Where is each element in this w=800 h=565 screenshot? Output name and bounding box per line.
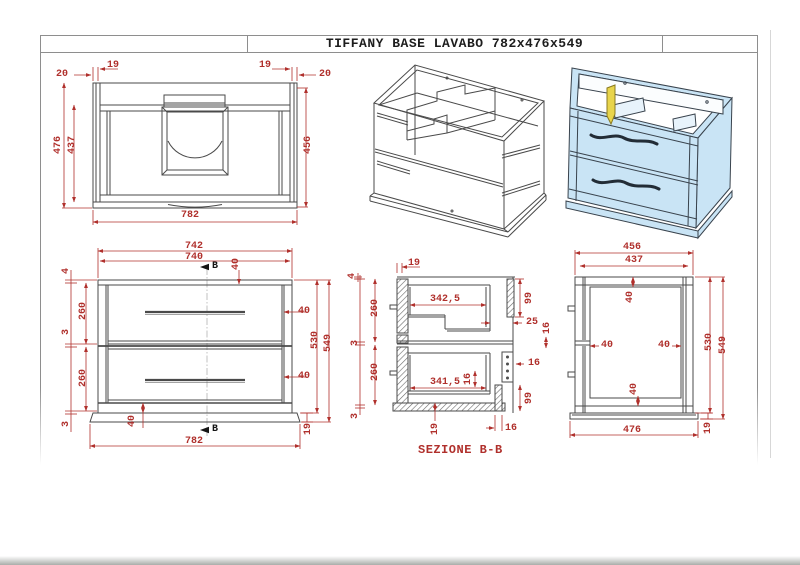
dim-label: 40 [630, 383, 640, 395]
scan-bottom-band [0, 556, 800, 565]
dim-label: 19 [431, 423, 441, 435]
drawer-handle-side [568, 306, 575, 311]
dim-label: 4 [62, 268, 72, 274]
back-panel-section [495, 385, 502, 411]
section-marker: B [212, 262, 218, 272]
dim-label: 20 [56, 70, 68, 80]
dim-label: 782 [185, 437, 203, 447]
dim-label: 456 [304, 136, 314, 154]
drawer-handle-side [568, 372, 575, 377]
dim-label: 40 [298, 372, 310, 382]
dim-label: 19 [704, 422, 714, 434]
dim-label: 19 [107, 61, 119, 71]
scan-edge-line [770, 30, 771, 458]
wireframe-linework [362, 53, 562, 245]
sink-cutout [162, 107, 228, 175]
section-arrow-top [200, 264, 209, 270]
dim-label: 342,5 [430, 295, 460, 305]
mounting-bracket [607, 85, 615, 124]
dim-label: 19 [259, 61, 271, 71]
frame-left [40, 35, 41, 465]
dim-label: 530 [311, 331, 321, 349]
front-view: 742 740 40 B B 4 260 3 260 3 40 40 530 5… [55, 240, 355, 465]
dim-label: 549 [324, 334, 334, 352]
drawer-front-section [397, 279, 408, 333]
dim-label: 3 [62, 421, 72, 427]
dim-label: 4 [348, 273, 358, 279]
rendered-3d-view [555, 55, 760, 240]
dim-label: 260 [371, 363, 381, 381]
dim-label: 3 [351, 340, 361, 346]
handle-profile [168, 205, 222, 208]
dim-label: 19 [408, 259, 420, 269]
titlebar-divider-right [662, 35, 663, 52]
plinth [570, 413, 698, 419]
plinth [90, 413, 300, 422]
dim-label: 16 [464, 373, 474, 385]
dim-label: 260 [79, 302, 89, 320]
dim-label: 16 [505, 424, 517, 434]
side-view: 456 437 40 40 40 530 549 40 476 19 [555, 240, 770, 460]
dim-label: 530 [705, 333, 715, 351]
dim-label: 16 [528, 359, 540, 369]
dim-label: 40 [601, 341, 613, 351]
dim-label: 20 [319, 70, 331, 80]
dim-label: 740 [185, 253, 203, 263]
dim-label: 19 [304, 423, 314, 435]
dim-label: 742 [185, 242, 203, 252]
cabinet-bottom-section [393, 403, 505, 411]
dim-label: 456 [623, 243, 641, 253]
wireframe-3d-view [362, 53, 562, 245]
rendered-linework [555, 55, 760, 240]
dim-label: 3 [62, 329, 72, 335]
dim-label: 40 [298, 307, 310, 317]
dim-label: 549 [719, 336, 729, 354]
dim-label: 25 [526, 318, 538, 328]
section-caption: SEZIONE B-B [418, 444, 503, 456]
dim-label: 437 [625, 256, 643, 266]
dim-label: 16 [543, 322, 553, 334]
dim-label: 476 [54, 136, 64, 154]
dim-label: 40 [658, 341, 670, 351]
dim-label: 476 [623, 426, 641, 436]
dim-label: 40 [626, 291, 636, 303]
dim-label: 782 [181, 211, 199, 221]
dim-label: 99 [525, 292, 535, 304]
dim-label: 341,5 [430, 378, 460, 388]
top-view: 20 19 19 20 476 437 456 782 [50, 55, 335, 240]
dim-label: 40 [232, 258, 242, 270]
drawing-title: TIFFANY BASE LAVABO 782x476x549 [247, 36, 662, 51]
section-view-linework [350, 245, 560, 460]
section-view: 4 19 260 3 260 3 342,5 99 25 16 16 16 34… [350, 245, 560, 460]
section-marker: B [212, 425, 218, 435]
drawer-front-section [397, 347, 408, 403]
back-rail-section [507, 279, 514, 317]
dim-label: 437 [68, 136, 78, 154]
dim-label: 3 [351, 413, 361, 419]
dim-label: 40 [128, 415, 138, 427]
dim-label: 99 [525, 392, 535, 404]
dim-label: 260 [79, 369, 89, 387]
dim-label: 260 [371, 299, 381, 317]
section-arrow-bottom [200, 427, 209, 433]
